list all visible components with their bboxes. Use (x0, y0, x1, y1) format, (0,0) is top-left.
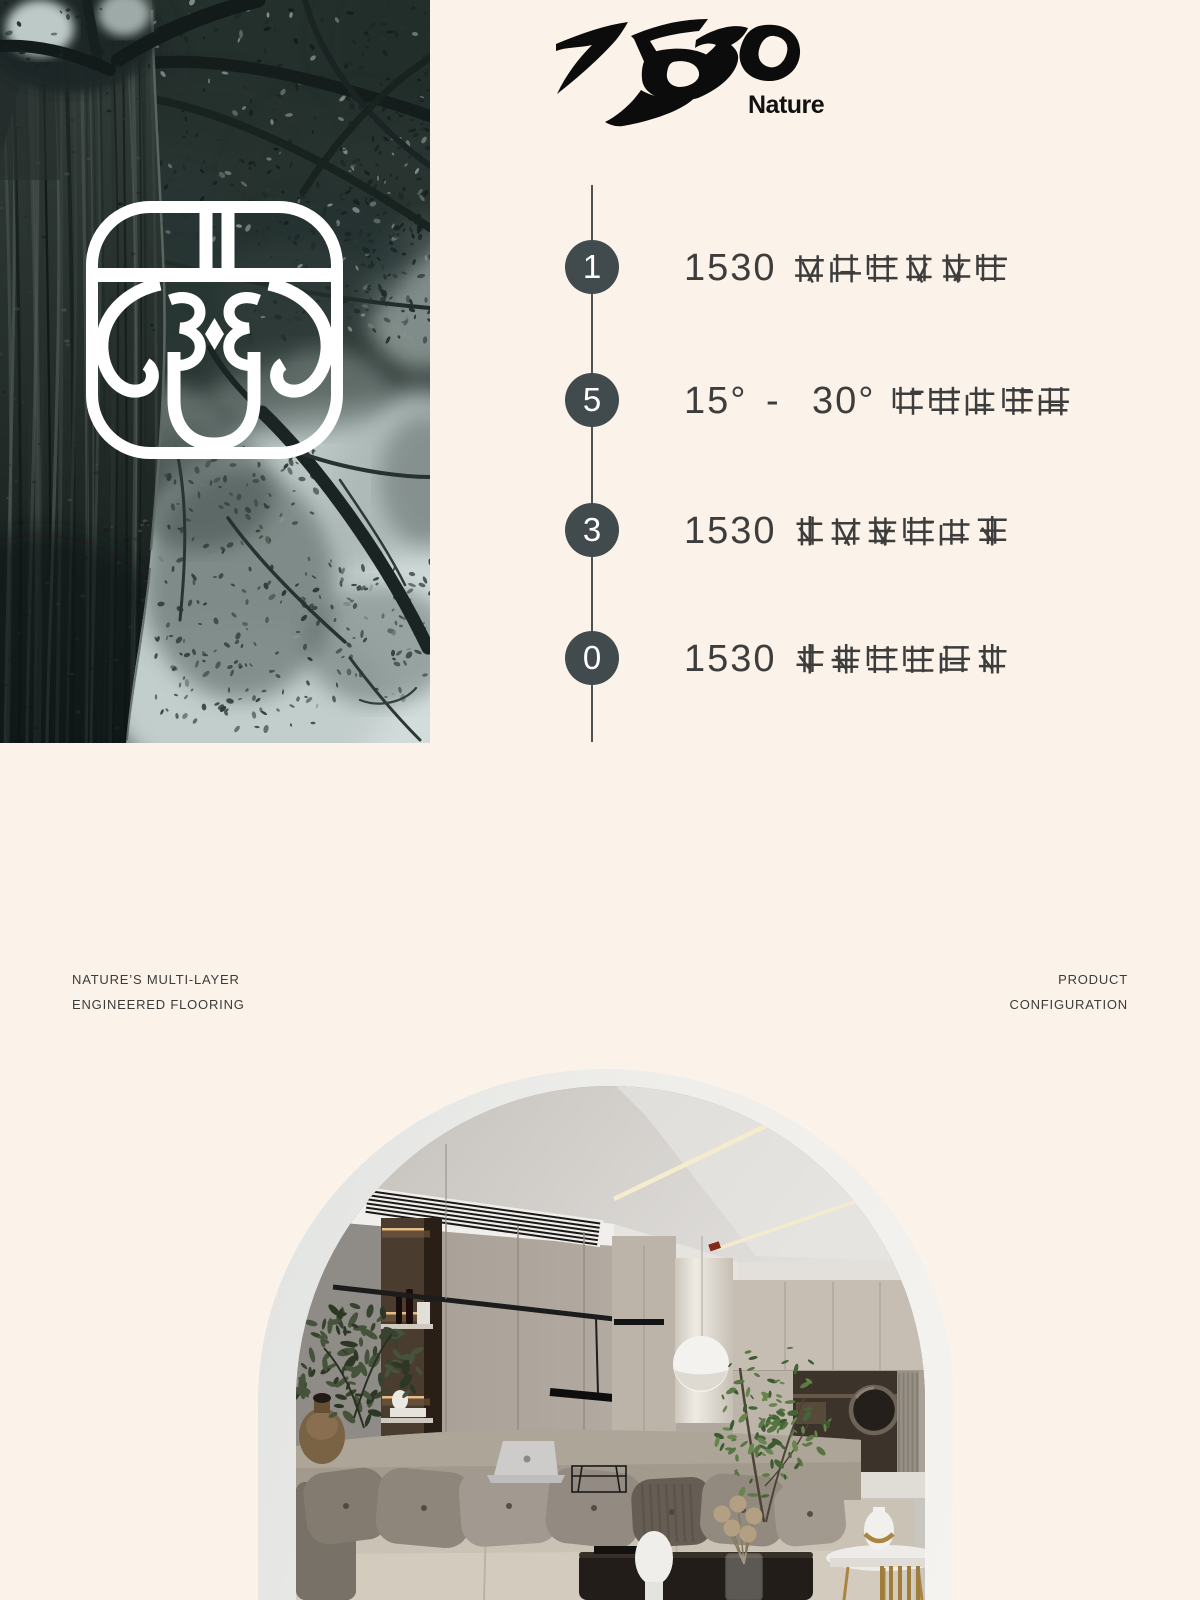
svg-text:30°: 30° (812, 380, 875, 422)
svg-text:15°: 15° (684, 380, 747, 422)
svg-text:1530: 1530 (684, 638, 777, 680)
svg-text:1530: 1530 (684, 247, 777, 289)
svg-text:-: - (766, 380, 781, 422)
svg-text:1530: 1530 (684, 510, 777, 552)
